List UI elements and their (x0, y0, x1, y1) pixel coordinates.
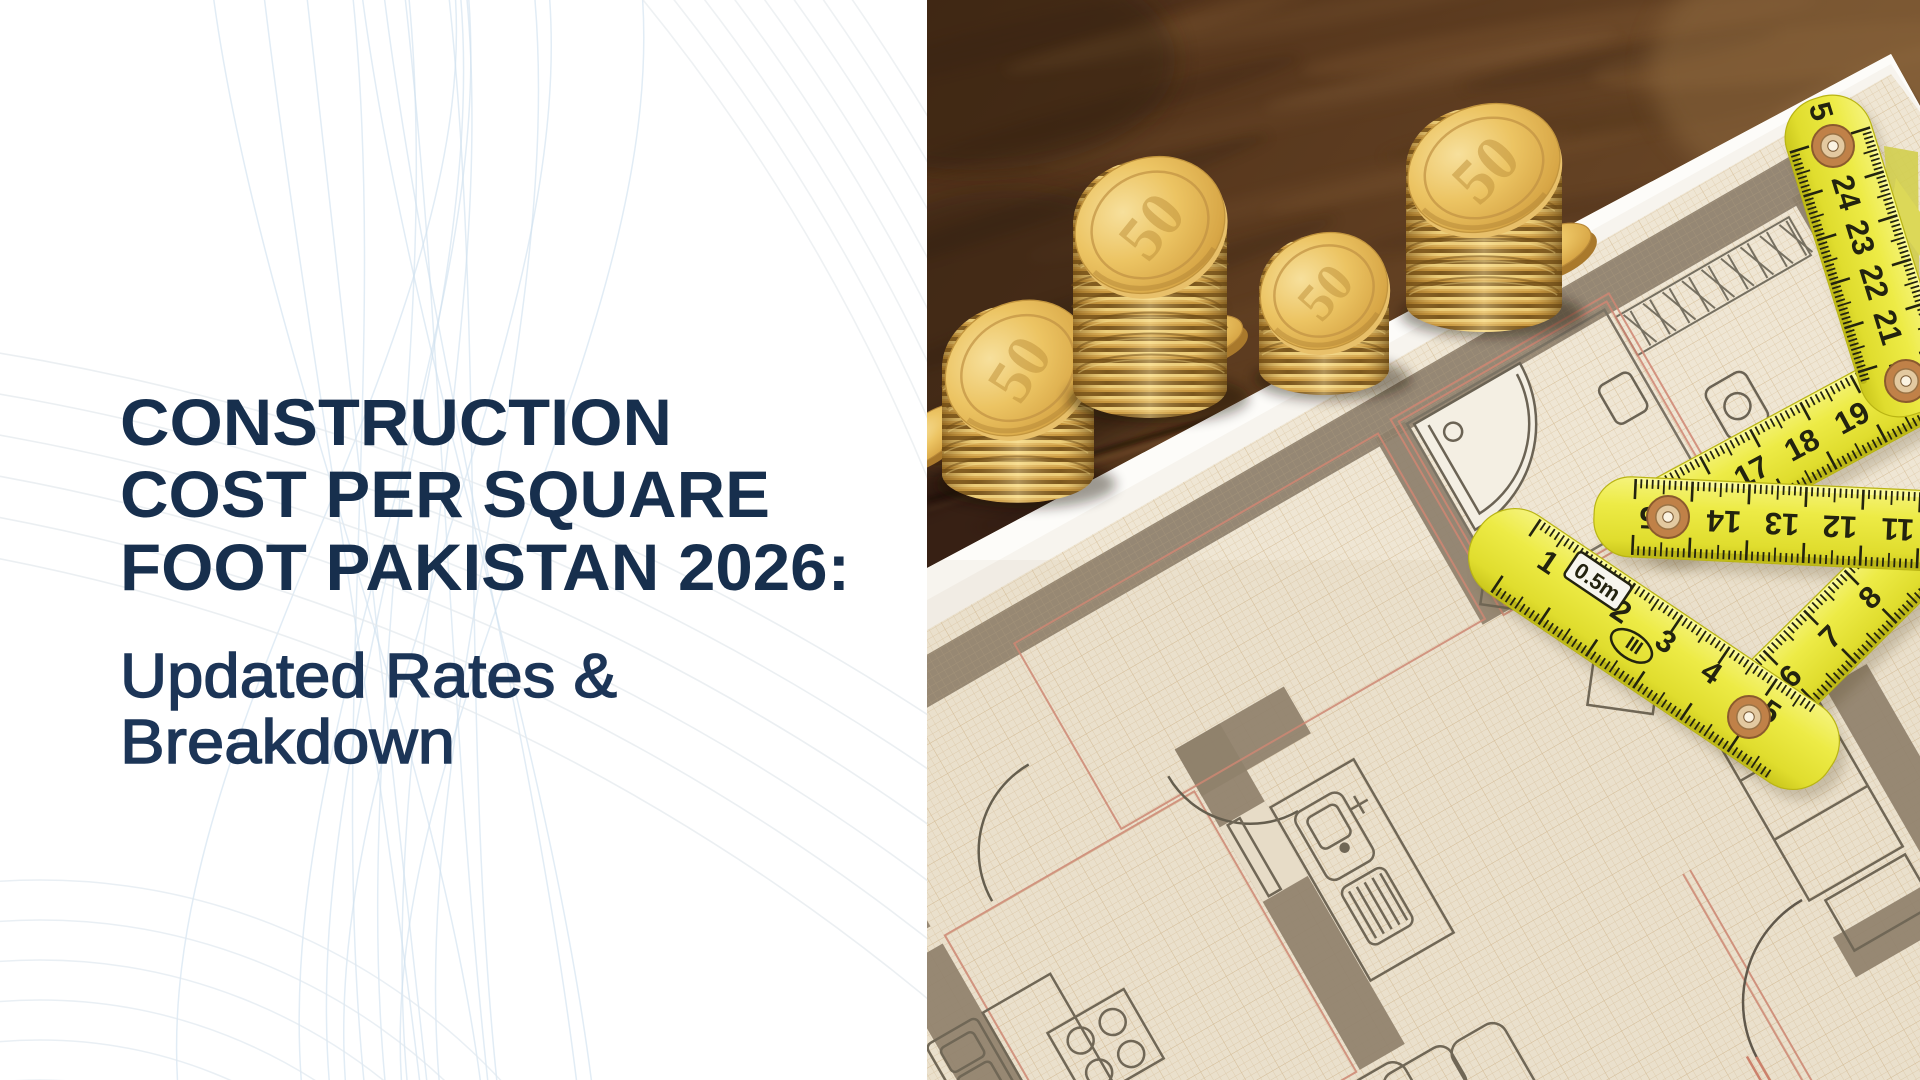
svg-text:Updated Rates &: Updated Rates & (120, 642, 617, 711)
svg-text:FOOT PAKISTAN 2026:: FOOT PAKISTAN 2026: (120, 530, 850, 604)
svg-text:13: 13 (1764, 506, 1800, 543)
svg-text:12: 12 (1822, 508, 1858, 545)
svg-text:11: 11 (1881, 511, 1915, 547)
svg-text:Breakdown: Breakdown (120, 708, 455, 777)
svg-text:COST PER SQUARE: COST PER SQUARE (120, 457, 770, 531)
svg-text:14: 14 (1705, 503, 1742, 540)
svg-text:CONSTRUCTION: CONSTRUCTION (120, 385, 672, 459)
